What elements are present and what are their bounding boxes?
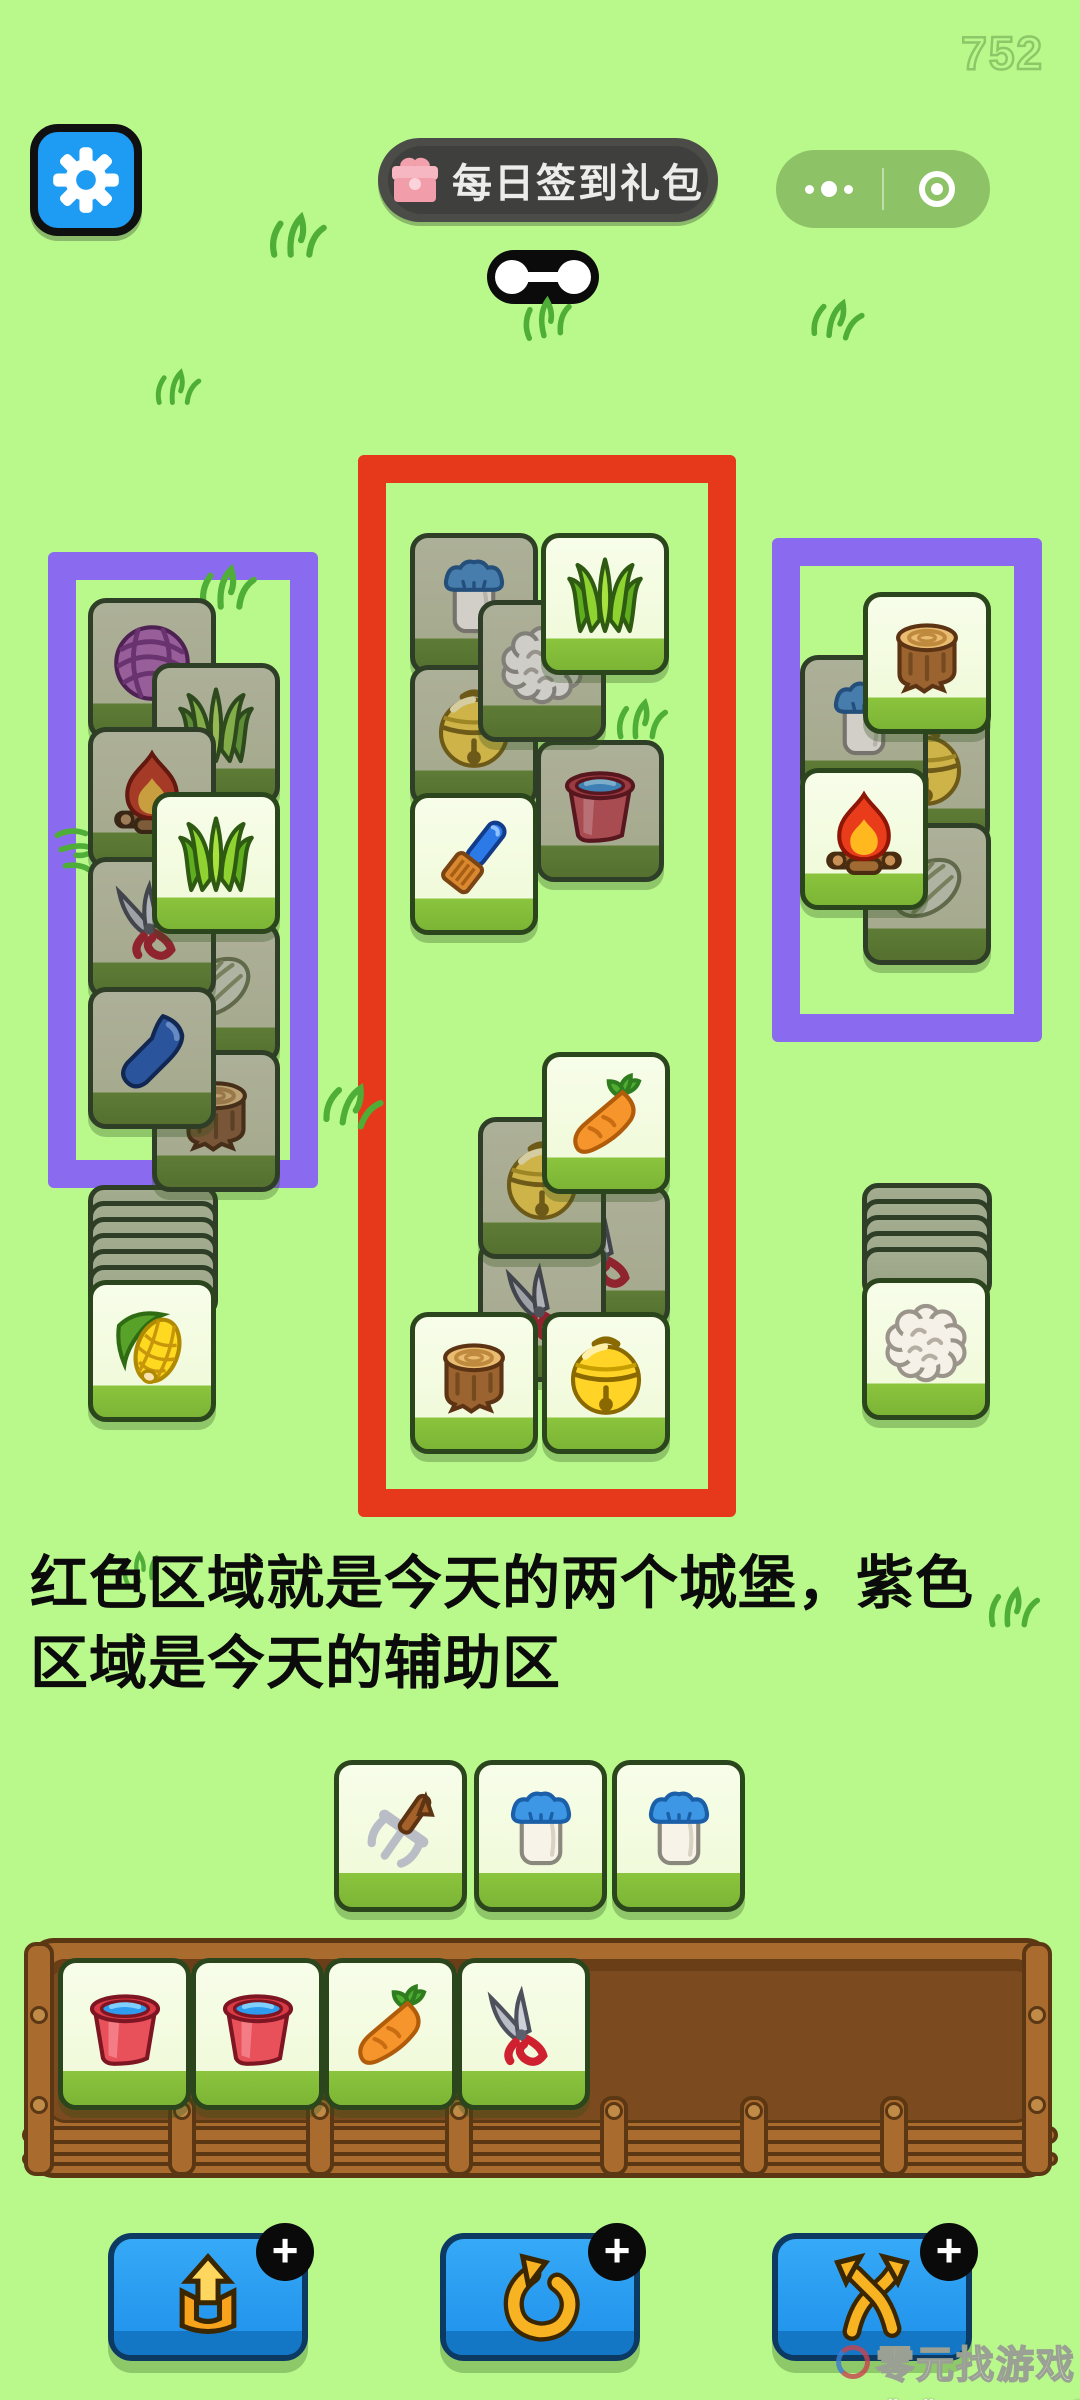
milk-icon — [635, 1786, 723, 1874]
pitchfork-icon — [357, 1786, 445, 1874]
more-menu-button[interactable] — [776, 181, 882, 197]
bell-icon — [562, 1333, 650, 1421]
tile-fire[interactable] — [800, 768, 928, 910]
bucket-icon — [214, 1984, 302, 2072]
plus-badge: + — [588, 2223, 646, 2281]
shears-icon — [480, 1984, 568, 2072]
grass-doodle-icon — [613, 695, 672, 742]
close-minimize-button[interactable] — [884, 171, 990, 207]
bucket-icon — [81, 1984, 169, 2072]
eject-tool-button[interactable]: + — [108, 2233, 308, 2361]
site-logo-icon — [836, 2345, 870, 2379]
caption-line-2: 区域是今天的辅助区 — [30, 1624, 1060, 1704]
target-circle-icon — [919, 171, 955, 207]
tile-grass[interactable] — [152, 792, 280, 934]
gift-button-label: 每日签到礼包 — [452, 151, 704, 209]
hand-tile-milk[interactable] — [474, 1760, 607, 1912]
daily-signin-gift-button[interactable]: 每日签到礼包 — [378, 138, 718, 222]
miniprogram-capsule — [776, 150, 990, 228]
undo-tool-button[interactable]: + — [440, 2233, 640, 2361]
tile-stump[interactable] — [863, 592, 991, 734]
tile-shovel — [88, 987, 216, 1129]
more-dots-icon — [844, 185, 853, 194]
bucket-icon — [556, 761, 644, 849]
plus-badge: + — [920, 2223, 978, 2281]
bone-icon — [517, 272, 569, 282]
gear-icon — [51, 145, 121, 215]
caption: 红色区域就是今天的两个城堡，紫色 区域是今天的辅助区 — [30, 1544, 1060, 1704]
site-logo-text: 零元找游戏 — [876, 2334, 1076, 2389]
undo-icon — [494, 2251, 586, 2343]
tray-slot-tile-bucket — [58, 1958, 191, 2110]
tile-stump[interactable] — [410, 1312, 538, 1454]
game-screen: 752 每日签到礼包 红色区域就是今 — [0, 0, 1080, 2400]
more-dots-icon — [821, 181, 837, 197]
more-dots-icon — [805, 185, 814, 194]
site-watermark: 零元找游戏 www.lingliuyx.com www.06zyx.com — [836, 2334, 1076, 2400]
deck-top-tile-corn[interactable] — [88, 1280, 216, 1422]
tile-brush[interactable] — [410, 793, 538, 935]
corn-icon — [108, 1301, 196, 1389]
grass-doodle-icon — [515, 288, 582, 344]
carrot-icon — [347, 1984, 435, 2072]
tray-slot-tile-carrot — [324, 1958, 457, 2110]
tile-bell[interactable] — [542, 1312, 670, 1454]
milk-icon — [497, 1786, 585, 1874]
hand-tile-milk[interactable] — [612, 1760, 745, 1912]
tile-bucket — [536, 740, 664, 882]
caption-line-1: 红色区域就是今天的两个城堡，紫色 — [30, 1544, 1060, 1624]
brush-icon — [430, 814, 518, 902]
stump-icon — [430, 1333, 518, 1421]
carrot-icon — [562, 1073, 650, 1161]
grass-icon — [561, 554, 649, 642]
tray-slots — [28, 1938, 1052, 2178]
shovel-icon — [108, 1008, 196, 1096]
eject-icon — [162, 2251, 254, 2343]
deck-top-tile-wool[interactable] — [862, 1278, 990, 1420]
tile-grass[interactable] — [541, 533, 669, 675]
fire-icon — [820, 789, 908, 877]
hand-tile-pitchfork[interactable] — [334, 1760, 467, 1912]
plus-badge: + — [256, 2223, 314, 2281]
tray — [28, 1938, 1052, 2178]
wool-icon — [882, 1299, 970, 1387]
settings-button[interactable] — [30, 124, 142, 236]
grass-icon — [172, 813, 260, 901]
tray-slot-tile-shears — [457, 1958, 590, 2110]
tray-slot-tile-bucket — [191, 1958, 324, 2110]
grass-doodle-icon — [153, 365, 206, 407]
gift-icon — [392, 158, 438, 202]
stump-icon — [883, 613, 971, 701]
shuffle-icon — [826, 2251, 918, 2343]
grass-doodle-icon — [266, 208, 332, 260]
tile-carrot[interactable] — [542, 1052, 670, 1194]
tile-counter: 752 — [961, 26, 1044, 80]
grass-doodle-icon — [806, 291, 871, 346]
